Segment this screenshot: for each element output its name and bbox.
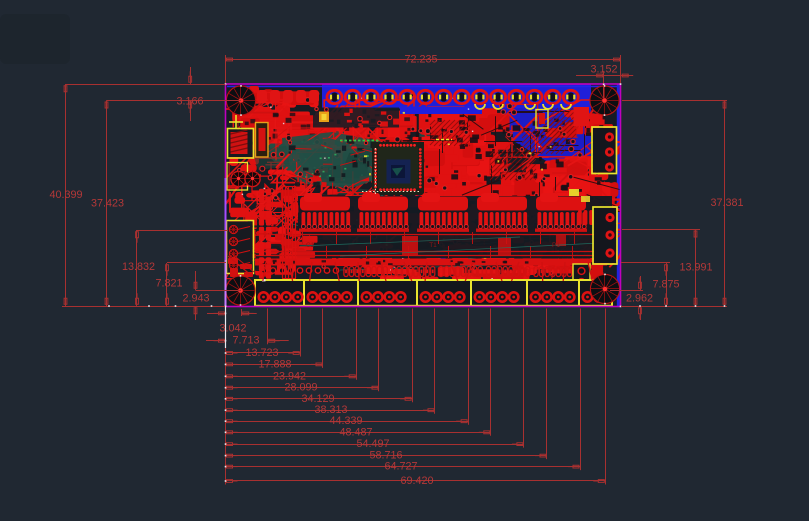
svg-text:7.821: 7.821	[155, 278, 182, 290]
svg-text:3.042: 3.042	[219, 323, 246, 335]
svg-text:17.888: 17.888	[258, 358, 291, 370]
svg-text:2.943: 2.943	[182, 292, 209, 304]
svg-text:48.487: 48.487	[339, 426, 372, 438]
svg-text:13.991: 13.991	[679, 261, 712, 273]
svg-text:3.166: 3.166	[176, 95, 203, 107]
svg-text:23.942: 23.942	[273, 370, 306, 382]
svg-text:7.875: 7.875	[652, 279, 679, 291]
svg-text:69.420: 69.420	[400, 475, 433, 487]
svg-text:T1: T1	[429, 242, 437, 249]
svg-text:13.832: 13.832	[122, 261, 155, 273]
svg-text:2.962: 2.962	[626, 292, 653, 304]
svg-text:7.713: 7.713	[232, 335, 259, 347]
svg-text:13.723: 13.723	[245, 347, 278, 359]
svg-text:40.399: 40.399	[49, 189, 82, 201]
svg-text:64.727: 64.727	[384, 461, 417, 473]
svg-text:P1: P1	[552, 242, 560, 249]
svg-text:54.497: 54.497	[356, 438, 389, 450]
svg-text:72.235: 72.235	[404, 54, 437, 66]
svg-text:37.423: 37.423	[91, 198, 124, 210]
svg-text:37.381: 37.381	[710, 197, 743, 209]
svg-text:34.129: 34.129	[301, 393, 334, 405]
svg-text:C1: C1	[306, 242, 315, 249]
